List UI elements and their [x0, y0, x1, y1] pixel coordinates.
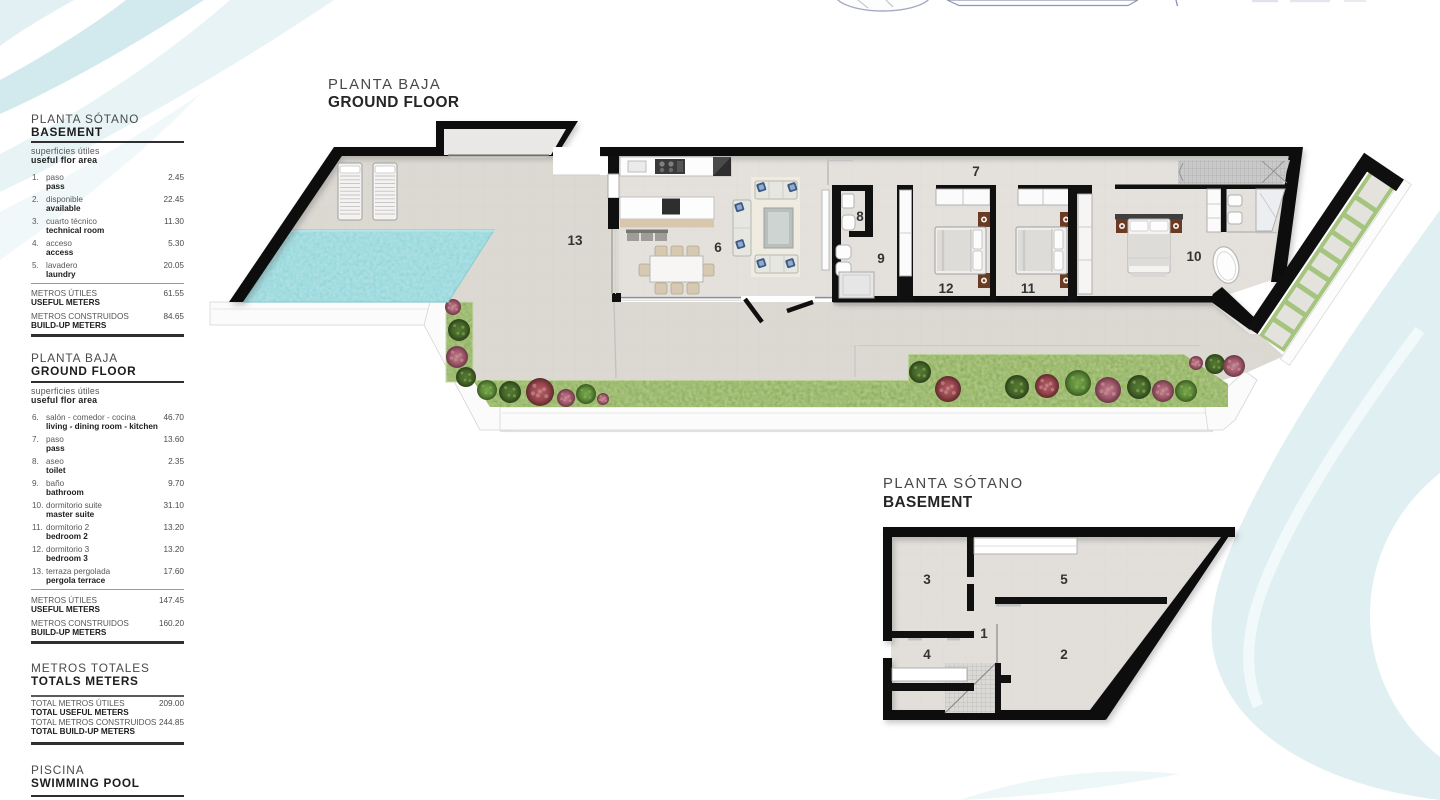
svg-text:7: 7 [972, 164, 980, 179]
svg-text:8: 8 [856, 209, 864, 224]
svg-text:3: 3 [923, 572, 931, 587]
svg-text:1: 1 [980, 626, 988, 641]
svg-text:10: 10 [1186, 249, 1201, 264]
svg-text:5: 5 [1060, 572, 1068, 587]
svg-text:11: 11 [1021, 281, 1036, 296]
svg-text:4: 4 [923, 647, 931, 662]
svg-text:9: 9 [877, 251, 885, 266]
svg-text:2: 2 [1060, 647, 1068, 662]
svg-text:6: 6 [714, 240, 722, 255]
svg-text:13: 13 [567, 233, 583, 248]
svg-text:12: 12 [938, 281, 953, 296]
